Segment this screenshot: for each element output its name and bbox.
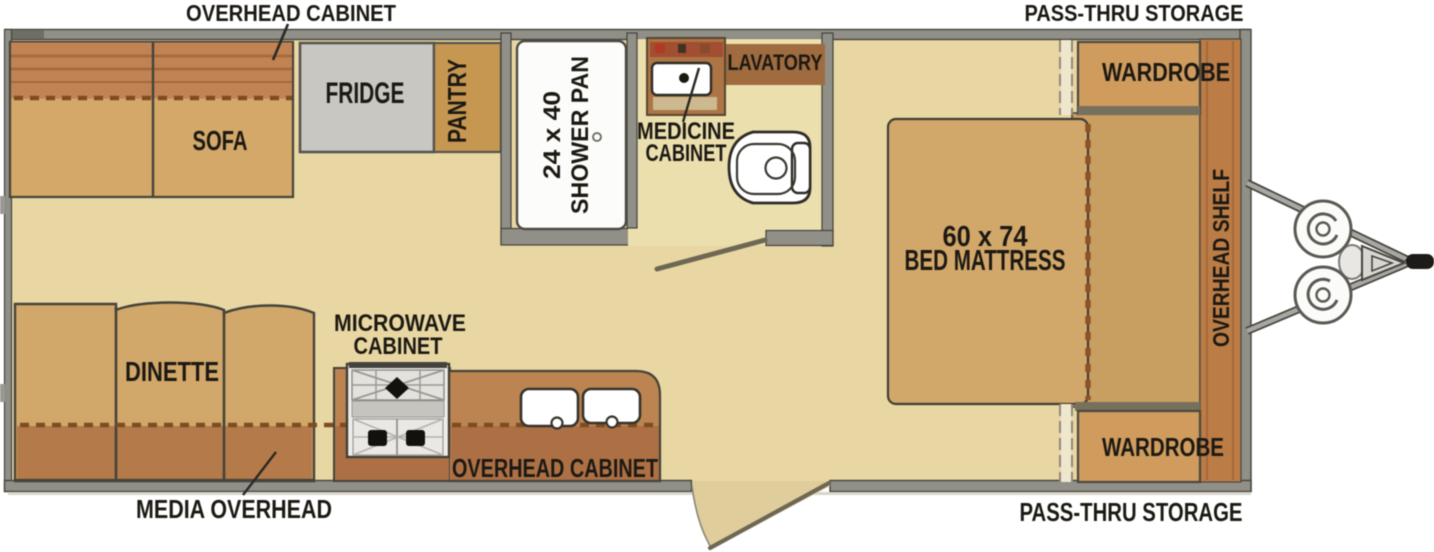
svg-text:OVERHEAD SHELF: OVERHEAD SHELF [1208,169,1234,347]
svg-text:FRIDGE: FRIDGE [326,77,405,110]
svg-text:CABINET: CABINET [354,333,443,360]
svg-text:PANTRY: PANTRY [442,59,472,143]
svg-text:24 x 40: 24 x 40 [539,91,566,179]
svg-text:WARDROBE: WARDROBE [1102,432,1224,462]
svg-text:BED MATTRESS: BED MATTRESS [905,245,1066,277]
svg-text:SHOWER PAN: SHOWER PAN [567,56,594,214]
svg-text:MEDIA OVERHEAD: MEDIA OVERHEAD [136,494,332,524]
svg-text:CABINET: CABINET [646,140,727,167]
svg-text:WARDROBE: WARDROBE [1102,57,1230,87]
svg-text:PASS-THRU STORAGE: PASS-THRU STORAGE [1025,0,1244,26]
svg-text:OVERHEAD CABINET: OVERHEAD CABINET [186,0,396,26]
svg-text:SOFA: SOFA [193,125,248,156]
svg-text:PASS-THRU STORAGE: PASS-THRU STORAGE [1020,497,1243,527]
svg-text:OVERHEAD CABINET: OVERHEAD CABINET [452,453,658,483]
svg-text:DINETTE: DINETTE [125,356,219,387]
svg-text:LAVATORY: LAVATORY [728,50,823,75]
